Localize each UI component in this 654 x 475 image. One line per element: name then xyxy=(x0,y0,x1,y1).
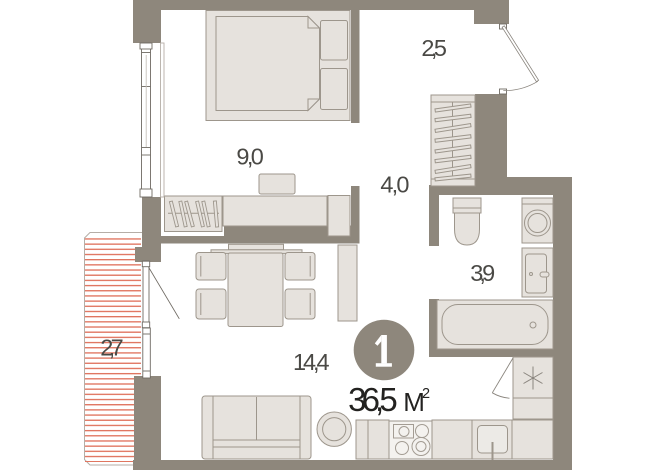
svg-text:36,5: 36,5 xyxy=(348,381,398,418)
svg-text:3,9: 3,9 xyxy=(470,260,495,286)
svg-text:2: 2 xyxy=(422,386,430,402)
svg-text:2,7: 2,7 xyxy=(100,335,124,361)
svg-text:14,4: 14,4 xyxy=(293,349,330,375)
svg-text:4,0: 4,0 xyxy=(380,172,409,198)
svg-text:9,0: 9,0 xyxy=(236,144,263,170)
svg-text:2,5: 2,5 xyxy=(421,35,447,61)
